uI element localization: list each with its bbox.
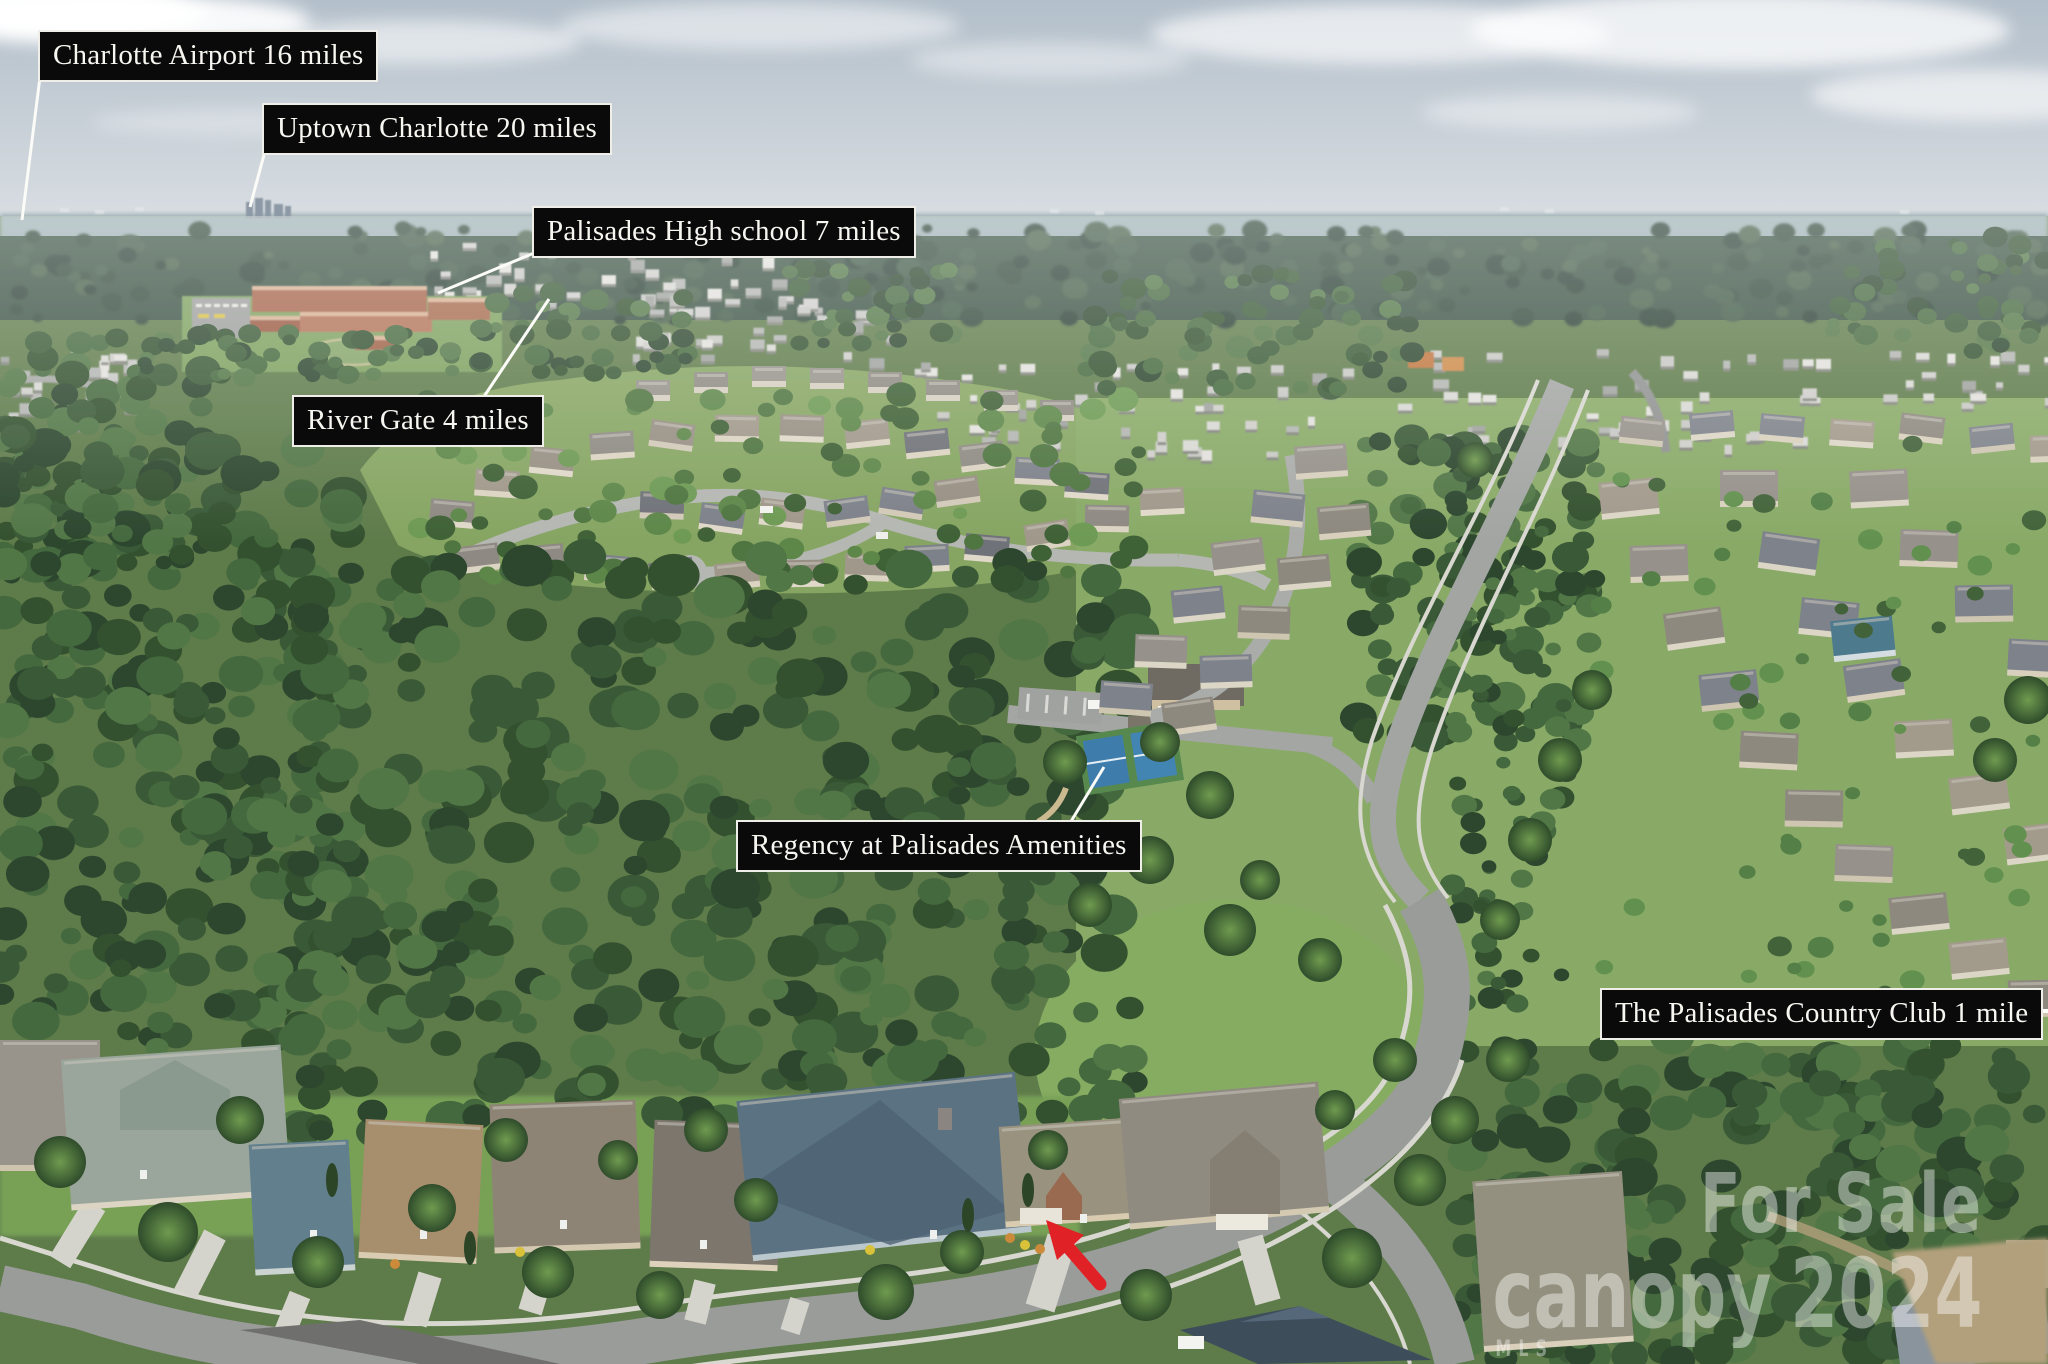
mls-watermark: For Sale canopyMLS 2024 [1492,1164,1982,1344]
watermark-brand-year: canopyMLS 2024 [1492,1246,1982,1344]
aerial-listing-photo: Charlotte Airport 16 miles Uptown Charlo… [0,0,2048,1364]
photo-label-regency-amenities: Regency at Palisades Amenities [736,820,1142,872]
watermark-year: 2024 [1790,1246,1982,1344]
watermark-for-sale: For Sale [1492,1164,1982,1246]
photo-label-charlotte-airport: Charlotte Airport 16 miles [38,30,378,82]
photo-label-country-club: The Palisades Country Club 1 mile [1600,988,2043,1040]
watermark-mls: MLS [1495,1339,1554,1361]
photo-label-uptown-charlotte: Uptown Charlotte 20 miles [262,103,612,155]
photo-label-river-gate: River Gate 4 miles [292,395,544,447]
watermark-brand: canopyMLS [1492,1246,1771,1344]
photo-label-palisades-high-school: Palisades High school 7 miles [532,206,916,258]
